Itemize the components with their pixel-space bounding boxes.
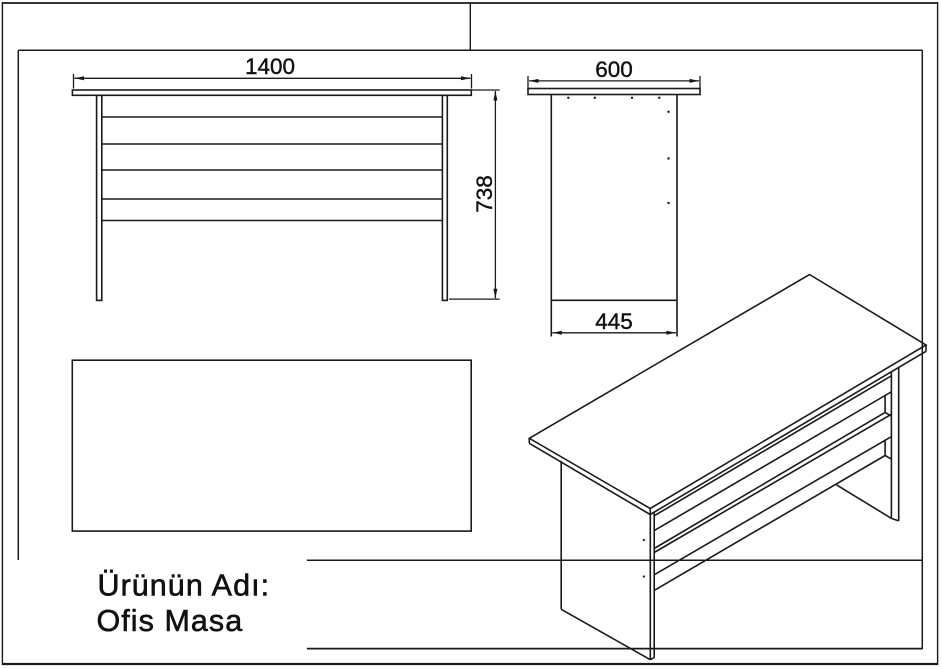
svg-text:Ürünün Adı:: Ürünün Adı: (98, 569, 271, 603)
svg-text:Ofis Masa: Ofis Masa (97, 604, 244, 638)
svg-text:738: 738 (472, 175, 497, 213)
svg-text:445: 445 (595, 309, 633, 334)
svg-text:1400: 1400 (245, 54, 295, 79)
svg-text:600: 600 (595, 57, 633, 82)
